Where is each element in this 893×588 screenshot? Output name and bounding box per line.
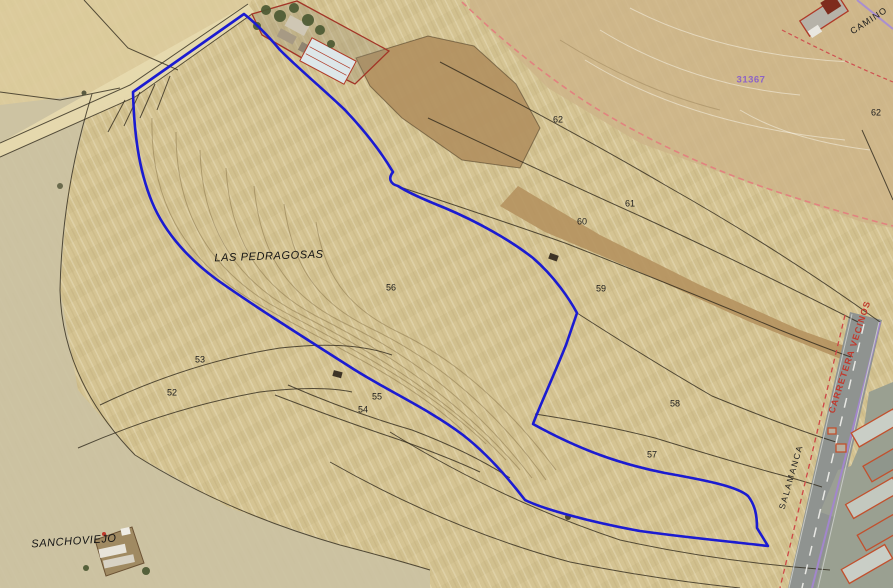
terrain-patches (0, 0, 893, 588)
map-graphics (0, 0, 893, 588)
aerial-map-canvas[interactable]: LAS PEDRAGOSASSANCHOVIEJO525354555657585… (0, 0, 893, 588)
field-contour-lines (152, 118, 556, 480)
